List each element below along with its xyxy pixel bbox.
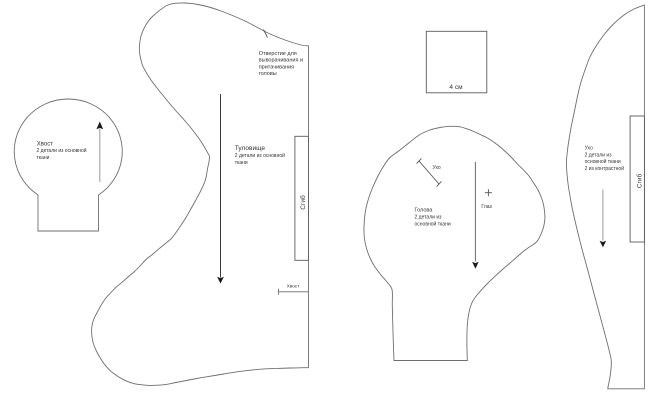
svg-text:основной ткани: основной ткани	[585, 158, 621, 165]
svg-text:4 см: 4 см	[449, 84, 463, 91]
svg-text:Ухо: Ухо	[585, 146, 593, 152]
svg-text:ткани: ткани	[37, 155, 50, 161]
svg-text:Хвост: Хвост	[37, 141, 53, 147]
svg-text:2 детали из основной: 2 детали из основной	[37, 147, 87, 154]
svg-text:Туловище: Туловище	[235, 145, 266, 152]
svg-text:притачивания: притачивания	[259, 64, 294, 70]
svg-text:Отверстие для: Отверстие для	[259, 51, 297, 57]
svg-text:2 детали из основной: 2 детали из основной	[235, 152, 285, 159]
svg-text:Глаз: Глаз	[481, 204, 492, 210]
svg-text:Сгиб: Сгиб	[636, 174, 644, 189]
svg-text:2 детали из: 2 детали из	[415, 215, 443, 221]
svg-text:головы: головы	[259, 71, 277, 77]
svg-text:2 детали из: 2 детали из	[585, 152, 613, 158]
svg-text:основной ткани: основной ткани	[415, 221, 451, 228]
svg-text:Сгиб: Сгиб	[299, 195, 307, 210]
svg-text:ткани: ткани	[235, 160, 248, 166]
svg-text:Хвост: Хвост	[287, 284, 301, 289]
svg-text:2 из контрастной: 2 из контрастной	[585, 165, 625, 172]
svg-text:выворачивания и: выворачивания и	[259, 58, 303, 64]
svg-text:Голова: Голова	[415, 208, 434, 214]
svg-text:Ухо: Ухо	[433, 165, 441, 171]
